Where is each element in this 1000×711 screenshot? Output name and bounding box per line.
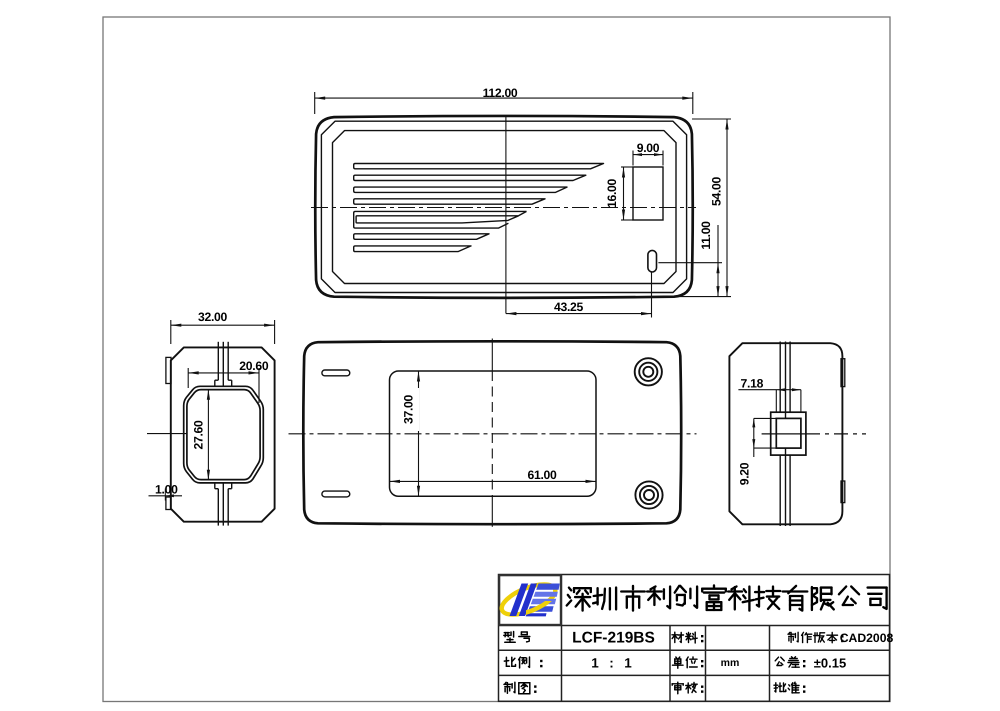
svg-text:54.00: 54.00	[710, 176, 724, 206]
svg-text:LCF-219BS: LCF-219BS	[572, 630, 655, 647]
svg-text:CAD2008: CAD2008	[840, 631, 894, 645]
svg-text:112.00: 112.00	[483, 86, 518, 100]
svg-text:61.00: 61.00	[528, 468, 558, 482]
svg-text:16.00: 16.00	[605, 178, 619, 208]
svg-text:11.00: 11.00	[699, 221, 713, 250]
svg-text:mm: mm	[721, 657, 740, 669]
svg-text:9.20: 9.20	[738, 462, 752, 485]
svg-text:1.00: 1.00	[155, 483, 178, 497]
svg-text:7.18: 7.18	[741, 377, 764, 391]
svg-text:9.00: 9.00	[637, 141, 660, 155]
svg-text:32.00: 32.00	[198, 310, 228, 324]
svg-text:20.60: 20.60	[239, 359, 269, 373]
svg-text:37.00: 37.00	[402, 394, 416, 424]
svg-text:1 : 1: 1 : 1	[591, 656, 633, 671]
svg-text:27.60: 27.60	[192, 420, 206, 450]
svg-text:±0.15: ±0.15	[814, 655, 846, 670]
svg-text:43.25: 43.25	[554, 300, 584, 314]
